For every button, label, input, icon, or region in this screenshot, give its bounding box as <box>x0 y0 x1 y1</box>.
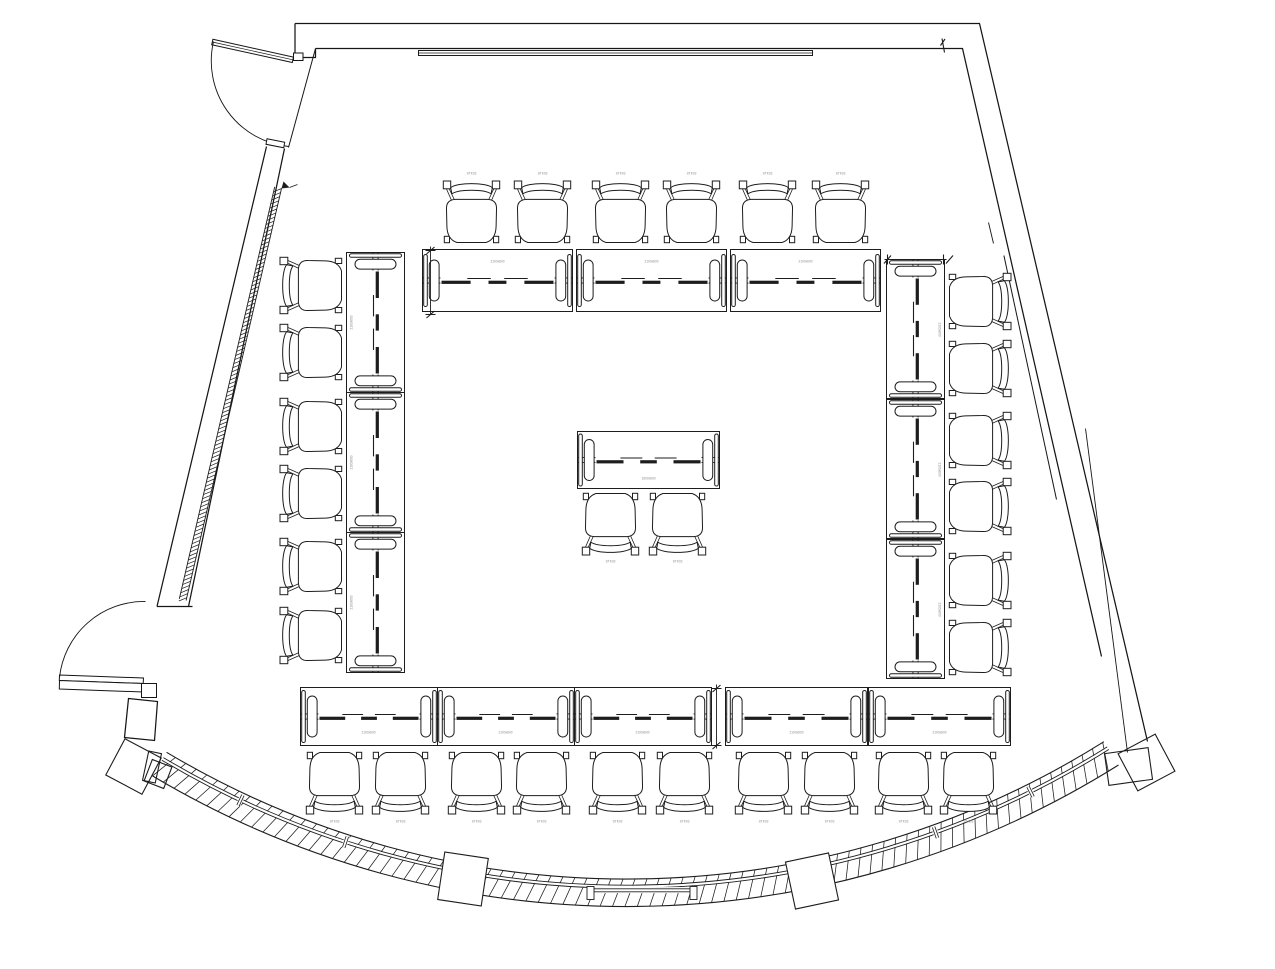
svg-text:STK03: STK03 <box>825 820 835 824</box>
svg-text:STK03: STK03 <box>472 820 482 824</box>
svg-text:2100x600: 2100x600 <box>350 315 354 329</box>
svg-text:2100x600: 2100x600 <box>644 260 658 264</box>
svg-text:2100x600: 2100x600 <box>938 462 942 476</box>
svg-text:STK03: STK03 <box>763 172 773 176</box>
svg-text:STK03: STK03 <box>467 172 477 176</box>
svg-text:2100x600: 2100x600 <box>361 731 375 735</box>
svg-text:STK03: STK03 <box>606 560 616 564</box>
svg-text:STK03: STK03 <box>687 172 697 176</box>
svg-text:2100x600: 2100x600 <box>938 322 942 336</box>
svg-text:2100x600: 2100x600 <box>350 455 354 469</box>
svg-text:2100x600: 2100x600 <box>350 595 354 609</box>
svg-text:2100x600: 2100x600 <box>938 602 942 616</box>
svg-text:2100x600: 2100x600 <box>789 731 803 735</box>
svg-text:STK03: STK03 <box>538 172 548 176</box>
svg-text:1600x600: 1600x600 <box>641 477 655 481</box>
svg-text:2100x600: 2100x600 <box>490 260 504 264</box>
svg-text:STK03: STK03 <box>537 820 547 824</box>
svg-text:2100x600: 2100x600 <box>798 260 812 264</box>
svg-text:2100x600: 2100x600 <box>932 731 946 735</box>
svg-text:STK03: STK03 <box>680 820 690 824</box>
svg-text:STK03: STK03 <box>396 820 406 824</box>
svg-text:STK03: STK03 <box>759 820 769 824</box>
svg-text:STK03: STK03 <box>899 820 909 824</box>
svg-text:STK03: STK03 <box>616 172 626 176</box>
svg-text:2100x600: 2100x600 <box>635 731 649 735</box>
svg-text:STK03: STK03 <box>964 820 974 824</box>
svg-text:STK03: STK03 <box>330 820 340 824</box>
svg-text:2100x600: 2100x600 <box>498 731 512 735</box>
svg-text:STK03: STK03 <box>836 172 846 176</box>
svg-text:STK03: STK03 <box>673 560 683 564</box>
svg-text:STK03: STK03 <box>613 820 623 824</box>
